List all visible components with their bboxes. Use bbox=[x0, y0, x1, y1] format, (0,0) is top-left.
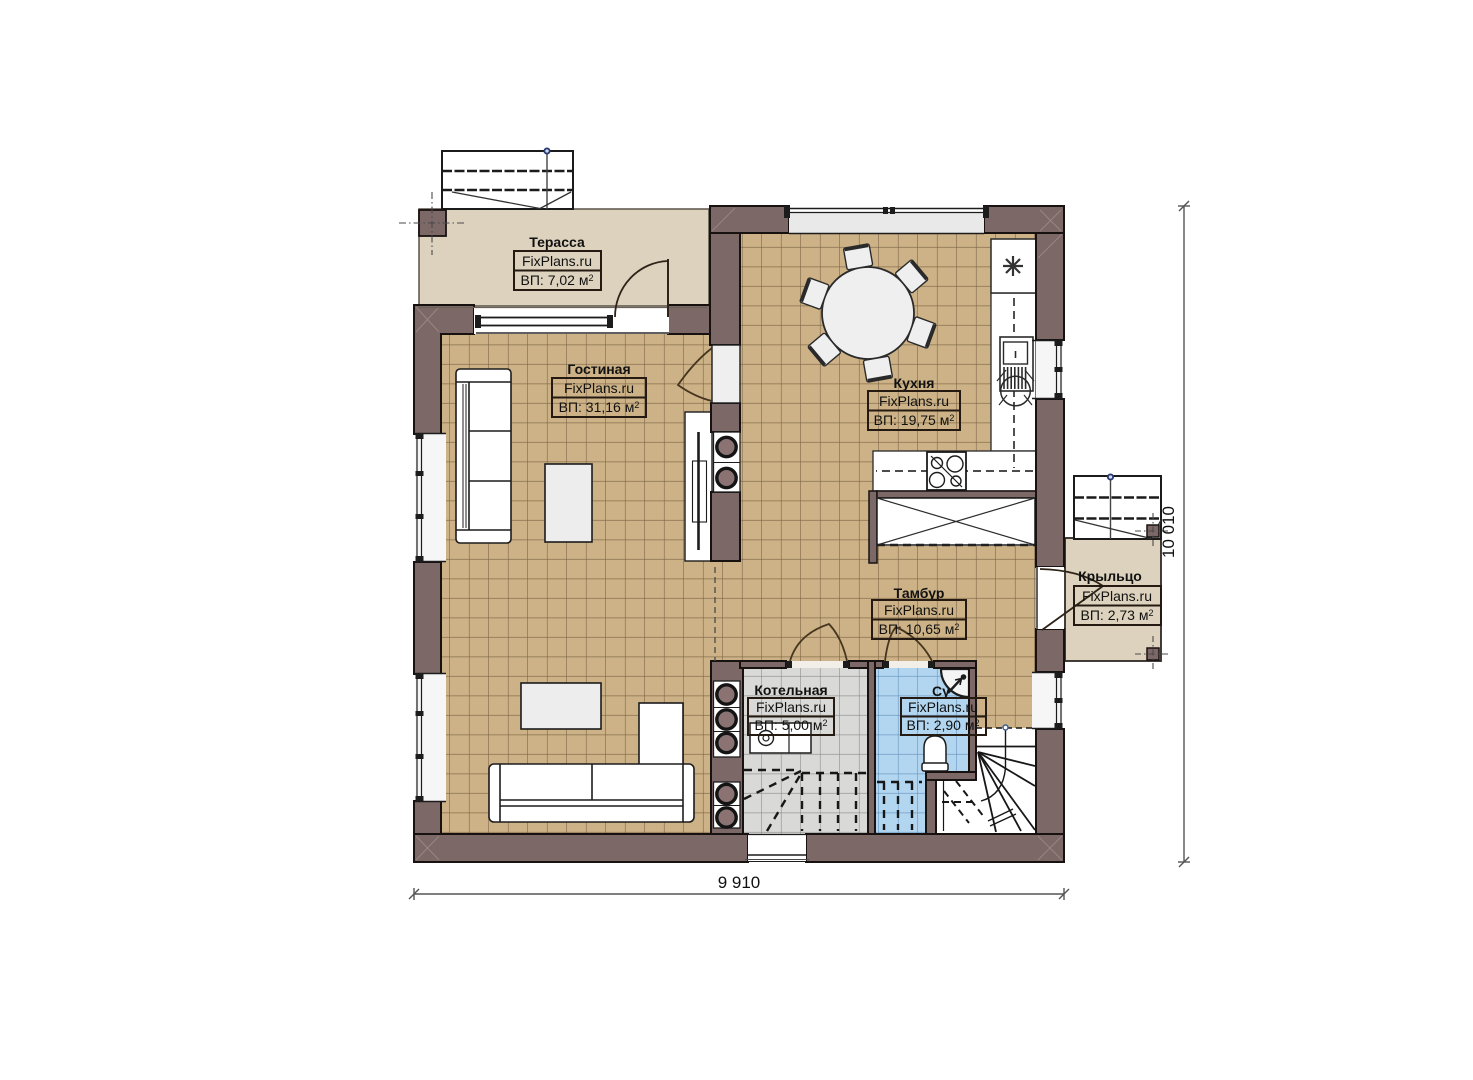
svg-text:Су: Су bbox=[932, 683, 950, 699]
svg-text:ВП: 5,00 м2: ВП: 5,00 м2 bbox=[755, 717, 828, 733]
svg-text:9 910: 9 910 bbox=[718, 873, 761, 892]
svg-text:Гостиная: Гостиная bbox=[567, 361, 630, 377]
svg-text:FixPlans.ru: FixPlans.ru bbox=[879, 393, 949, 409]
svg-text:ВП: 2,90 м2: ВП: 2,90 м2 bbox=[907, 717, 980, 733]
svg-text:Тамбур: Тамбур bbox=[894, 585, 945, 601]
svg-text:Терасса: Терасса bbox=[529, 234, 585, 250]
svg-text:ВП: 7,02 м2: ВП: 7,02 м2 bbox=[521, 272, 594, 288]
svg-text:Котельная: Котельная bbox=[754, 682, 827, 698]
svg-text:ВП: 31,16 м2: ВП: 31,16 м2 bbox=[559, 399, 640, 415]
svg-text:10 010: 10 010 bbox=[1159, 506, 1178, 558]
svg-text:FixPlans.ru: FixPlans.ru bbox=[908, 699, 978, 715]
svg-text:Крыльцо: Крыльцо bbox=[1078, 568, 1142, 584]
svg-text:FixPlans.ru: FixPlans.ru bbox=[564, 380, 634, 396]
svg-text:Кухня: Кухня bbox=[894, 375, 935, 391]
svg-text:ВП: 2,73 м2: ВП: 2,73 м2 bbox=[1081, 607, 1154, 623]
svg-text:FixPlans.ru: FixPlans.ru bbox=[884, 602, 954, 618]
svg-text:FixPlans.ru: FixPlans.ru bbox=[756, 699, 826, 715]
svg-text:FixPlans.ru: FixPlans.ru bbox=[1082, 588, 1152, 604]
svg-text:ВП: 19,75 м2: ВП: 19,75 м2 bbox=[874, 412, 955, 428]
svg-text:FixPlans.ru: FixPlans.ru bbox=[522, 253, 592, 269]
svg-text:ВП: 10,65 м2: ВП: 10,65 м2 bbox=[879, 621, 960, 637]
